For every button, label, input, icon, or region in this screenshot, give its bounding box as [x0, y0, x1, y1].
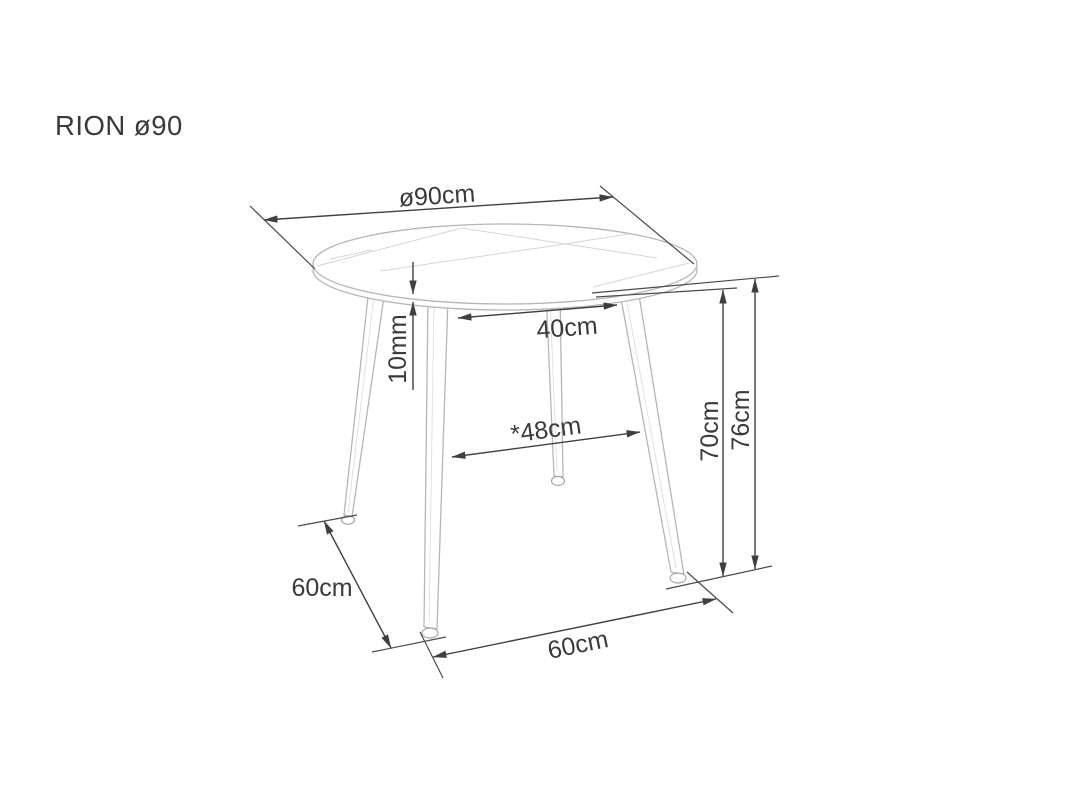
- total-height-label: 76cm: [727, 389, 755, 450]
- dim-foot-spacing-front: 60cm: [420, 572, 733, 678]
- leg-highlight: [348, 296, 374, 512]
- extension-line: [372, 637, 446, 652]
- dim-heights: 70cm 76cm: [592, 276, 779, 589]
- leg-shape: [424, 296, 448, 629]
- table-leg-front-left: [424, 296, 448, 629]
- leg-shape: [344, 288, 385, 517]
- table-illustration: [313, 224, 697, 638]
- foot-back-right: [552, 477, 565, 486]
- diameter-label: ø90cm: [398, 179, 476, 212]
- extension-line: [687, 572, 733, 613]
- foot-spacing-side-label: 60cm: [291, 574, 352, 602]
- foot-front-right: [670, 573, 686, 583]
- tabletop-surface: [313, 224, 697, 304]
- thickness-label: 10mm: [384, 314, 412, 383]
- dim-leg-spacing-top: 40cm: [458, 305, 617, 344]
- foot-front-left: [422, 628, 438, 638]
- table-dimension-drawing: ø90cm 10mm 40cm *48cm 70cm 76cm: [0, 0, 1077, 807]
- extension-line: [250, 206, 315, 269]
- table-leg-back-left: [344, 288, 385, 517]
- leg-highlight: [627, 302, 676, 568]
- foot-spacing-front-label: 60cm: [545, 625, 611, 665]
- leg-spacing-mid-label: *48cm: [509, 411, 583, 448]
- technical-drawing-page: ø90cm 10mm 40cm *48cm 70cm 76cm: [0, 0, 1077, 807]
- tabletop: [313, 224, 697, 310]
- dim-leg-spacing-mid: *48cm: [452, 411, 640, 457]
- height-under-top-label: 70cm: [696, 400, 724, 461]
- product-title: RION ø90: [55, 110, 183, 141]
- leg-spacing-top-label: 40cm: [535, 312, 598, 345]
